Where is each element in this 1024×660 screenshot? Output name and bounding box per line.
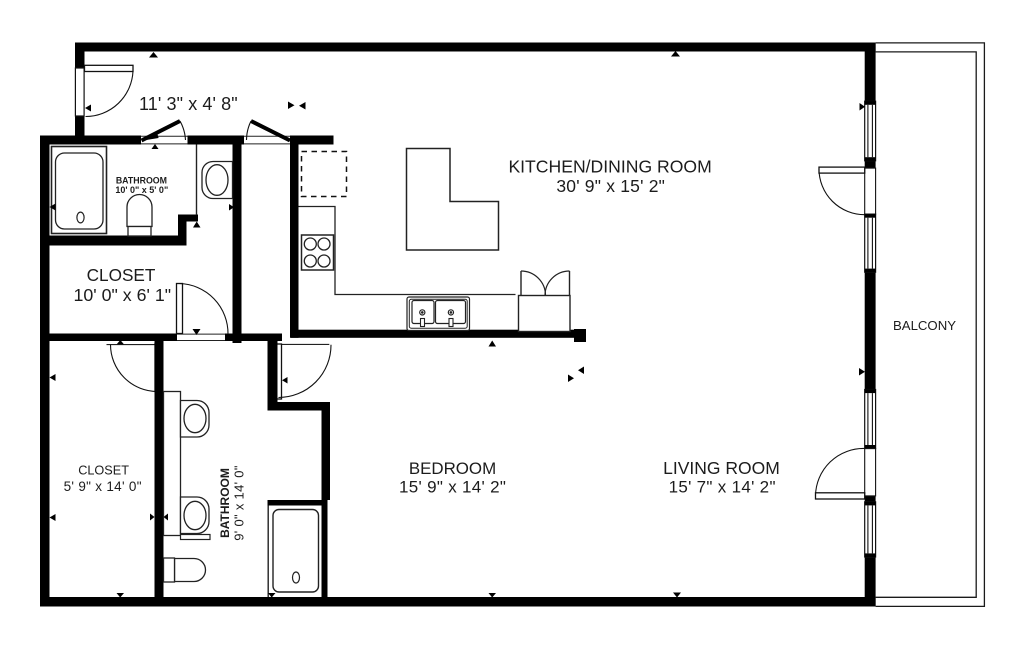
svg-text:BALCONY: BALCONY [893, 318, 956, 333]
svg-text:5' 9" x 14' 0": 5' 9" x 14' 0" [64, 479, 142, 494]
svg-text:11' 3" x 4' 8": 11' 3" x 4' 8" [139, 94, 238, 114]
svg-text:BATHROOM: BATHROOM [116, 176, 167, 186]
svg-text:15' 9" x 14' 2": 15' 9" x 14' 2" [399, 477, 506, 496]
svg-text:KITCHEN/DINING ROOM: KITCHEN/DINING ROOM [508, 156, 711, 176]
svg-text:CLOSET: CLOSET [78, 464, 129, 478]
svg-text:LIVING ROOM: LIVING ROOM [663, 458, 780, 478]
svg-text:30' 9" x 15' 2": 30' 9" x 15' 2" [556, 176, 665, 196]
svg-text:CLOSET: CLOSET [87, 265, 156, 285]
svg-text:15' 7" x 14' 2": 15' 7" x 14' 2" [669, 477, 776, 496]
svg-text:10' 0" x 5' 0": 10' 0" x 5' 0" [115, 185, 168, 195]
svg-text:BEDROOM: BEDROOM [409, 459, 496, 478]
svg-text:BATHROOM: BATHROOM [218, 468, 232, 538]
svg-text:9' 0" x 14' 0": 9' 0" x 14' 0" [231, 465, 246, 541]
svg-text:10' 0" x 6' 1": 10' 0" x 6' 1" [74, 285, 172, 305]
